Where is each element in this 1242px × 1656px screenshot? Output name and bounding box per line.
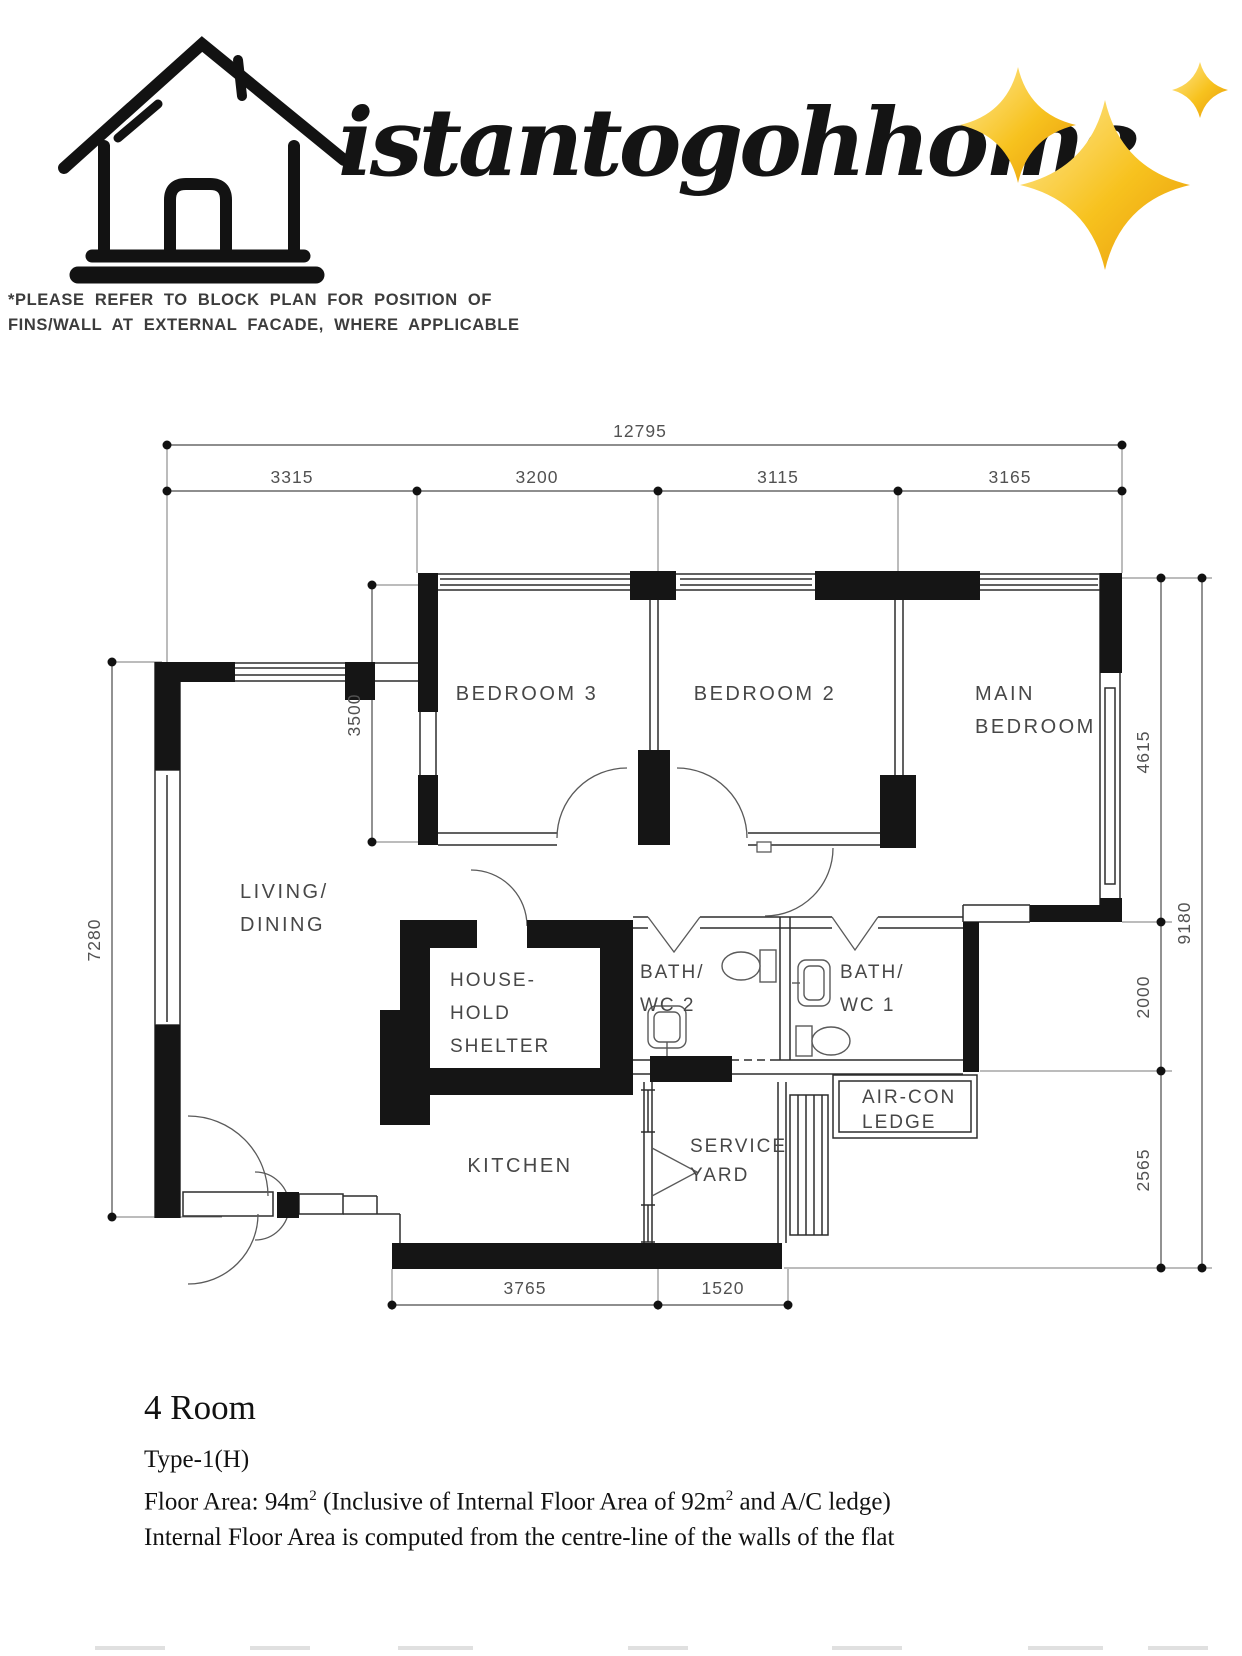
entrance-door-arc-lower bbox=[188, 1214, 258, 1284]
dim-seg4: 3165 bbox=[989, 467, 1032, 487]
room-label-living-1: LIVING/ bbox=[240, 881, 329, 903]
room-label-service-yard-2: YARD bbox=[690, 1165, 749, 1186]
room-label-bedroom2: BEDROOM 2 bbox=[694, 683, 837, 705]
room-label-bedroom3: BEDROOM 3 bbox=[456, 683, 599, 705]
bath2-toilet-tank bbox=[760, 950, 776, 982]
bedroom3-door-arc bbox=[557, 768, 627, 838]
dim-right-seg3: 2565 bbox=[1133, 1149, 1153, 1192]
bath1-toilet-tank bbox=[796, 1026, 812, 1056]
dim-bottom-seg2: 1520 bbox=[702, 1278, 745, 1298]
unit-summary: 4 Room Type-1(H) Floor Area: 94m2 (Inclu… bbox=[144, 1388, 894, 1556]
entrance-door-arc-upper bbox=[188, 1116, 268, 1196]
dimension-labels: 12795 3315 3200 3115 3165 7280 3500 4615… bbox=[84, 421, 1194, 1298]
bath2-toilet-bowl bbox=[722, 952, 760, 980]
room-label-shelter-2: HOLD bbox=[450, 1003, 511, 1024]
unit-type: Type-1(H) bbox=[144, 1442, 894, 1478]
flyer-page: istantogohhome *PLEASE REFER TO BLOCK PL… bbox=[0, 0, 1242, 1656]
room-label-shelter-3: SHELTER bbox=[450, 1036, 550, 1057]
unit-title: 4 Room bbox=[144, 1388, 894, 1428]
main-bedroom-door-arc bbox=[765, 848, 833, 916]
bath1-toilet-bowl bbox=[812, 1027, 850, 1055]
shelter-door-arc bbox=[471, 870, 527, 926]
dim-right-seg1: 4615 bbox=[1133, 731, 1153, 774]
room-label-aircon-2: LEDGE bbox=[862, 1112, 936, 1133]
dimension-ticks bbox=[108, 441, 1207, 1310]
dim-seg3: 3115 bbox=[757, 467, 799, 487]
dim-overall-width: 12795 bbox=[613, 421, 667, 441]
bath1-bifold-door bbox=[832, 917, 878, 950]
dim-seg2: 3200 bbox=[516, 467, 559, 487]
room-label-shelter-1: HOUSE- bbox=[450, 970, 536, 991]
dim-bed3-depth: 3500 bbox=[344, 694, 364, 737]
room-label-service-yard-1: SERVICE bbox=[690, 1136, 787, 1157]
room-label-main-bedroom-2: BEDROOM bbox=[975, 716, 1096, 738]
dim-left-height: 7280 bbox=[84, 919, 104, 962]
bath2-sink-basin bbox=[654, 1012, 680, 1042]
floor-area-footnote: Internal Floor Area is computed from the… bbox=[144, 1520, 894, 1556]
dim-overall-height: 9180 bbox=[1174, 902, 1194, 945]
dim-right-seg2: 2000 bbox=[1133, 976, 1153, 1019]
room-label-bath2-2: WC 2 bbox=[640, 995, 696, 1016]
bath1-sink-basin bbox=[804, 966, 824, 1000]
dim-seg1: 3315 bbox=[271, 467, 314, 487]
main-bedroom-door-hinge bbox=[757, 842, 771, 852]
room-label-bath1-1: BATH/ bbox=[840, 962, 905, 983]
room-label-living-2: DINING bbox=[240, 914, 325, 936]
bedroom2-door-arc bbox=[677, 768, 747, 838]
bath2-bifold-door bbox=[648, 917, 700, 952]
room-label-kitchen: KITCHEN bbox=[467, 1155, 572, 1177]
dim-bottom-seg1: 3765 bbox=[504, 1278, 547, 1298]
room-label-main-bedroom-1: MAIN bbox=[975, 683, 1035, 705]
room-label-bath2-1: BATH/ bbox=[640, 962, 705, 983]
floor-area-line: Floor Area: 94m2 (Inclusive of Internal … bbox=[144, 1478, 894, 1520]
room-label-bath1-2: WC 1 bbox=[840, 995, 896, 1016]
page-edge-artifacts bbox=[0, 1644, 1242, 1656]
room-label-aircon-1: AIR-CON bbox=[862, 1087, 956, 1108]
thin-walls-and-windows bbox=[155, 573, 1122, 1243]
